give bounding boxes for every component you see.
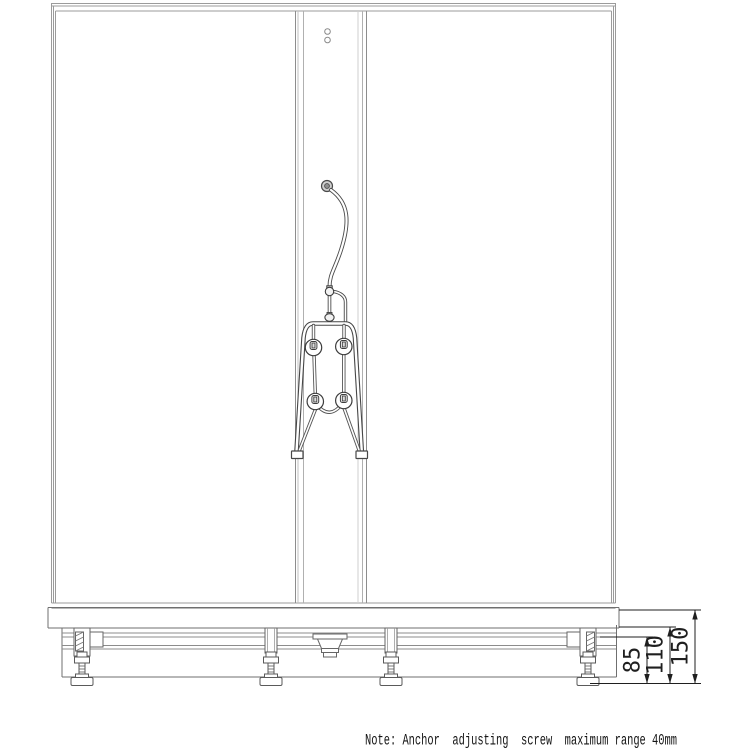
- post-middle-left: [265, 628, 277, 653]
- drain-trap: [324, 653, 337, 658]
- dimension-label-110: 110: [644, 635, 669, 675]
- post-middle-right: [385, 628, 397, 653]
- mounting-hole-top: [325, 29, 331, 35]
- foot-nut: [75, 657, 90, 663]
- bracket-plate-left: [76, 632, 84, 651]
- note-text: Note: Anchor adjusting screw maximum ran…: [365, 732, 677, 750]
- dimension-label-150: 150: [669, 627, 694, 667]
- knob-lower-right: [336, 392, 352, 408]
- collar-right: [356, 451, 368, 459]
- dimension-label-85: 85: [621, 647, 646, 674]
- holder-pin: [325, 184, 330, 189]
- drawing-canvas: 85 110 150 Note: Anchor adjusting screw …: [0, 0, 750, 750]
- panel-mounting-holes: [325, 29, 331, 43]
- shower-fixture: [292, 181, 368, 459]
- bracket-plate-right: [587, 632, 595, 651]
- adjustable-foot-4: [577, 652, 599, 686]
- adjustable-foot-2: [260, 652, 282, 686]
- adjustable-foot-3: [380, 652, 402, 686]
- base-tray: [48, 608, 619, 629]
- adjustable-foot-1: [71, 652, 93, 686]
- mounting-hole-bottom: [325, 37, 331, 43]
- shower-hose: [330, 190, 347, 287]
- technical-drawing: 85 110 150 Note: Anchor adjusting screw …: [0, 0, 750, 750]
- knob-upper-right: [336, 338, 352, 354]
- collar-left: [292, 451, 304, 459]
- cabinet-outline: [51, 4, 616, 604]
- leg-collars: [292, 451, 368, 459]
- drain-neck: [322, 649, 339, 653]
- base-frame: [62, 625, 617, 677]
- knob-lower-left: [307, 393, 323, 409]
- dimension-annotations: 85 110 150: [590, 610, 701, 684]
- hose-valve: [325, 286, 333, 296]
- knob-upper-left: [305, 339, 321, 355]
- bracket-wing-right: [567, 632, 580, 647]
- bracket-wing-left: [90, 632, 103, 647]
- foot-pad: [71, 678, 93, 686]
- tee-fitting: [325, 313, 334, 322]
- drain-body: [318, 639, 343, 649]
- drain-flange: [313, 634, 347, 639]
- valve-body: [325, 287, 333, 295]
- foot-collar: [77, 652, 87, 657]
- foot-lip: [76, 674, 89, 678]
